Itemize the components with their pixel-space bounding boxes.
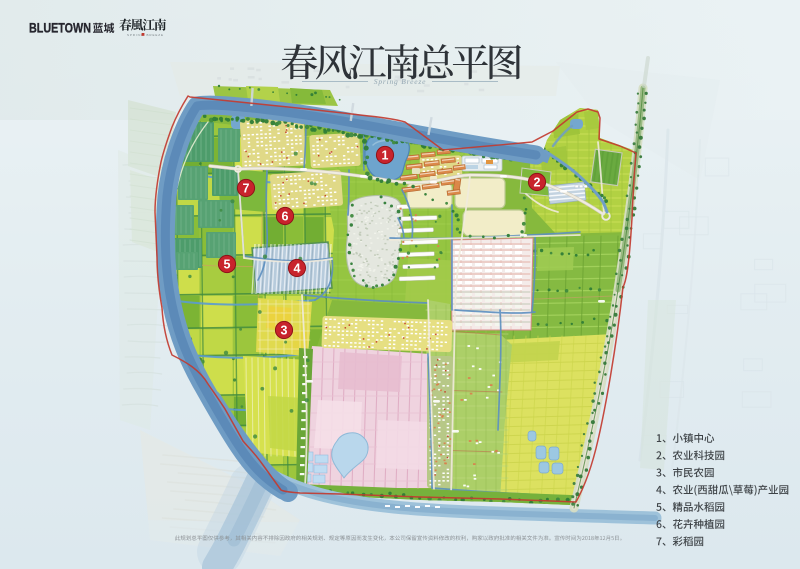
svg-text:3: 3 bbox=[281, 323, 288, 337]
svg-text:5: 5 bbox=[224, 257, 231, 271]
svg-text:1: 1 bbox=[382, 148, 389, 162]
svg-text:SPRING: SPRING bbox=[127, 33, 144, 37]
svg-text:Spring Breeze: Spring Breeze bbox=[374, 77, 426, 86]
svg-text:4: 4 bbox=[294, 261, 301, 275]
svg-text:BREEZE: BREEZE bbox=[147, 33, 164, 37]
svg-text:6: 6 bbox=[282, 209, 289, 223]
svg-text:7: 7 bbox=[243, 181, 250, 195]
svg-text:BLUETOWN: BLUETOWN bbox=[29, 21, 91, 36]
svg-text:2: 2 bbox=[534, 175, 541, 189]
